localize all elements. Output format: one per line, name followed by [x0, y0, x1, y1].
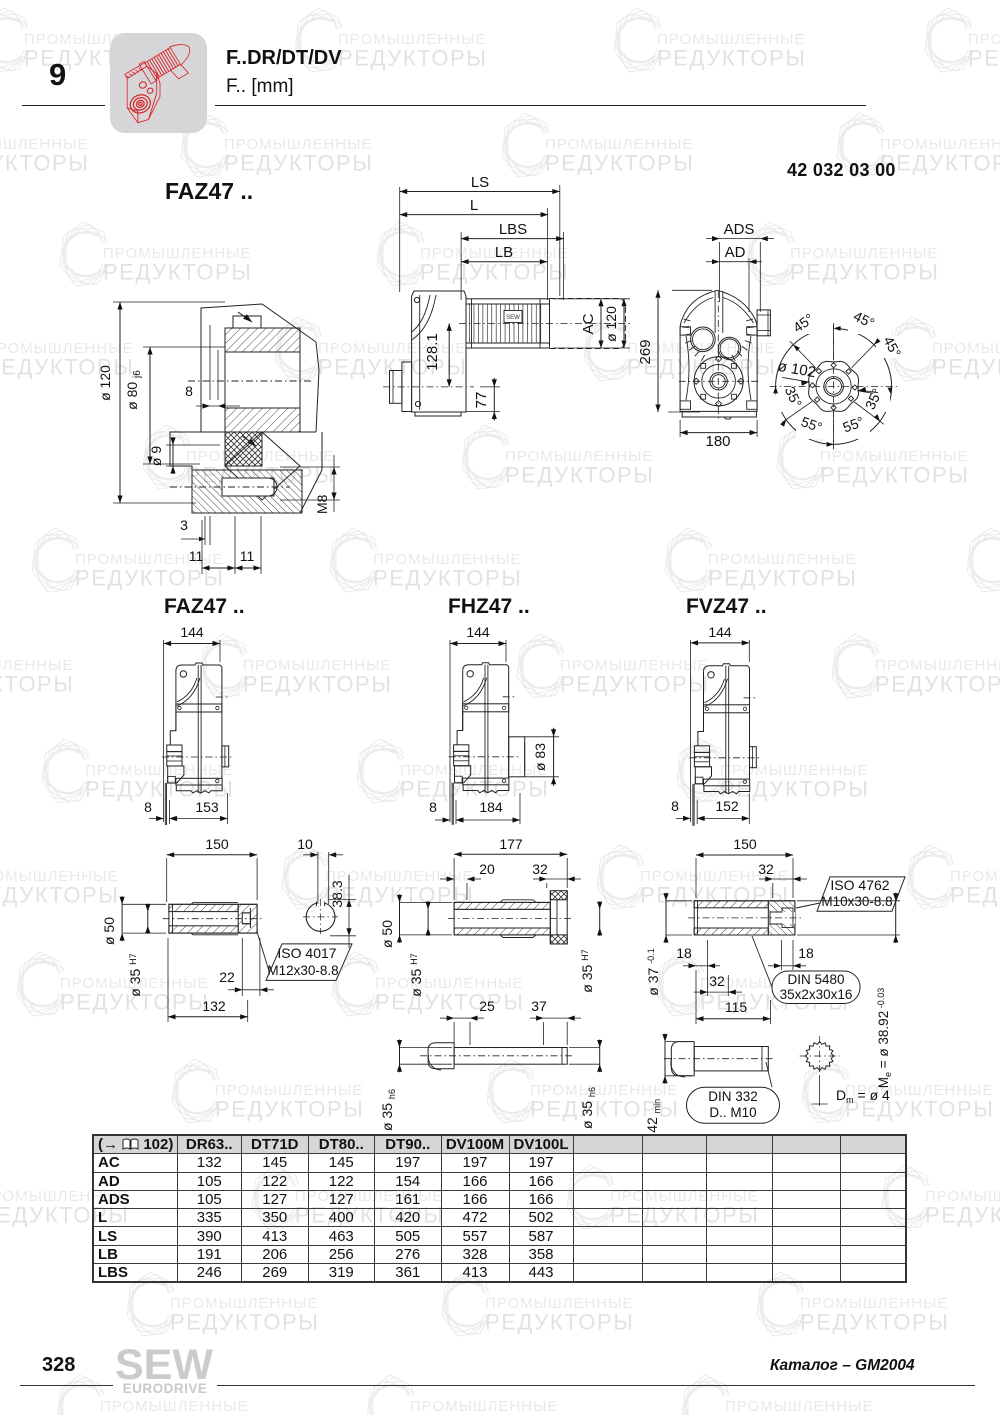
svg-text:20: 20 — [479, 861, 495, 877]
svg-text:DIN 5480: DIN 5480 — [787, 972, 844, 987]
svg-text:M8: M8 — [314, 494, 330, 514]
svg-text:8: 8 — [185, 383, 193, 399]
svg-text:AC: AC — [580, 313, 597, 334]
svg-text:ø 80 j6: ø 80 j6 — [124, 370, 143, 410]
svg-text:18: 18 — [676, 945, 692, 961]
svg-text:10: 10 — [297, 836, 313, 852]
svg-text:184: 184 — [479, 799, 503, 815]
svg-text:37: 37 — [531, 998, 547, 1014]
svg-text:ø 35 h6: ø 35 h6 — [579, 1087, 597, 1129]
svg-text:18: 18 — [798, 945, 814, 961]
svg-text:144: 144 — [180, 624, 204, 640]
svg-text:ø 9: ø 9 — [148, 446, 164, 466]
svg-text:ø 35 H7: ø 35 H7 — [579, 949, 595, 992]
svg-text:32: 32 — [532, 861, 548, 877]
svg-text:ø 37 -0.1: ø 37 -0.1 — [645, 948, 661, 995]
svg-text:8: 8 — [144, 799, 152, 815]
svg-text:ø 50: ø 50 — [379, 920, 395, 948]
svg-text:ø 120: ø 120 — [97, 365, 113, 401]
svg-text:128.1: 128.1 — [424, 333, 441, 371]
svg-text:8: 8 — [429, 799, 437, 815]
svg-text:SEW: SEW — [506, 315, 520, 321]
svg-text:Dm = ø 4: Dm = ø 4 — [836, 1087, 890, 1105]
svg-text:Me = ø 38.92 -0.03: Me = ø 38.92 -0.03 — [876, 988, 893, 1088]
svg-text:ISO 4762: ISO 4762 — [830, 877, 889, 893]
svg-text:150: 150 — [205, 836, 229, 852]
svg-text:M12x30-8.8: M12x30-8.8 — [267, 963, 338, 978]
svg-text:153: 153 — [195, 799, 219, 815]
svg-text:L: L — [470, 197, 478, 214]
svg-text:ISO 4017: ISO 4017 — [277, 945, 336, 961]
svg-text:ø 120: ø 120 — [603, 306, 619, 342]
svg-text:38.3: 38.3 — [329, 880, 345, 907]
svg-text:11: 11 — [240, 548, 255, 564]
svg-text:32: 32 — [709, 973, 725, 989]
svg-text:D.. M10: D.. M10 — [709, 1105, 756, 1120]
svg-text:150: 150 — [733, 836, 757, 852]
svg-text:ø 83: ø 83 — [532, 743, 548, 771]
svg-text:269: 269 — [637, 339, 654, 364]
svg-text:180: 180 — [705, 433, 730, 450]
svg-text:144: 144 — [708, 624, 732, 640]
svg-text:144: 144 — [466, 624, 490, 640]
svg-text:22: 22 — [219, 969, 235, 985]
svg-text:115: 115 — [725, 999, 748, 1015]
svg-text:132: 132 — [202, 998, 226, 1014]
svg-text:11: 11 — [189, 548, 204, 564]
svg-text:ø 50: ø 50 — [101, 917, 117, 945]
svg-text:3: 3 — [180, 517, 188, 533]
svg-text:AD: AD — [725, 244, 746, 261]
svg-text:ø 35 H7: ø 35 H7 — [127, 953, 143, 996]
svg-text:8: 8 — [671, 798, 679, 814]
svg-text:32: 32 — [758, 861, 774, 877]
svg-text:M10x30-8.8: M10x30-8.8 — [821, 894, 892, 909]
svg-text:DIN 332: DIN 332 — [708, 1089, 758, 1104]
svg-text:ø 35 h6: ø 35 h6 — [379, 1089, 397, 1131]
svg-text:ADS: ADS — [724, 221, 755, 238]
svg-text:35x2x30x16: 35x2x30x16 — [780, 987, 853, 1002]
svg-text:177: 177 — [499, 836, 523, 852]
svg-text:152: 152 — [715, 798, 739, 814]
svg-text:77: 77 — [473, 392, 490, 409]
svg-text:LBS: LBS — [499, 221, 527, 238]
svg-text:LB: LB — [495, 244, 513, 261]
svg-text:LS: LS — [471, 174, 489, 191]
svg-text:25: 25 — [479, 998, 495, 1014]
svg-text:ø 35 H7: ø 35 H7 — [408, 953, 424, 996]
